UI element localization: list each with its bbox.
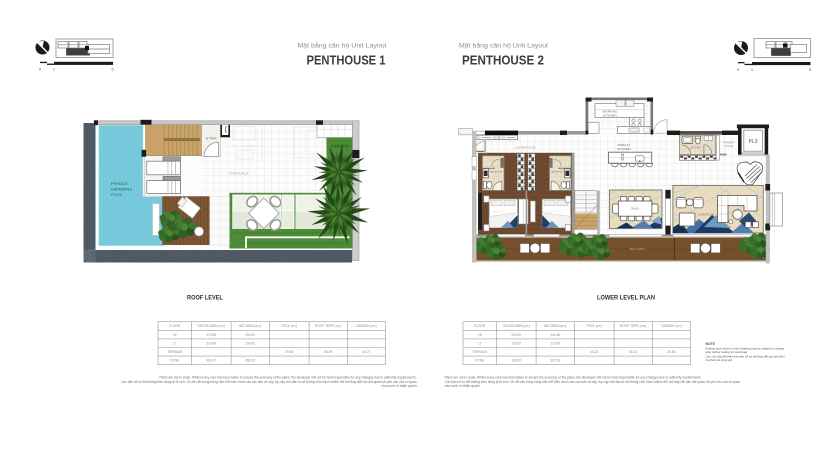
svg-text:nhà nước có thẩm quyền: nhà nước có thẩm quyền [445, 384, 481, 388]
svg-text:after further testing for wind: after further testing for wind load [706, 350, 748, 354]
svg-text:POOL (m²): POOL (m²) [586, 324, 601, 328]
svg-text:263.00: 263.00 [511, 333, 521, 337]
svg-text:ROOF TERR. (m²): ROOF TERR. (m²) [620, 324, 646, 328]
svg-text:BALCONY: BALCONY [630, 247, 646, 251]
svg-text:PENTHOUSE 2: PENTHOUSE 2 [462, 54, 544, 68]
svg-text:BEDROOM 1: BEDROOM 1 [547, 210, 563, 214]
svg-text:115.45: 115.45 [550, 341, 560, 345]
svg-text:DINING: DINING [631, 208, 640, 211]
svg-text:LIVING ROOM: LIVING ROOM [698, 214, 714, 217]
svg-text:tra thêm tải trọng gió: tra thêm tải trọng gió [706, 358, 733, 362]
svg-text:242.48: 242.48 [550, 333, 560, 337]
svg-text:459.22: 459.22 [245, 359, 255, 363]
svg-text:TERRACE: TERRACE [472, 350, 487, 354]
svg-text:GARDEN (m²): GARDEN (m²) [661, 324, 681, 328]
svg-text:51.42: 51.42 [629, 350, 637, 354]
svg-text:60.27: 60.27 [362, 350, 370, 354]
svg-text:16: 16 [173, 333, 177, 337]
svg-text:25.58: 25.58 [285, 350, 293, 354]
svg-text:BATHROOM: BATHROOM [490, 171, 502, 174]
svg-text:FOYER: FOYER [724, 144, 733, 148]
svg-text:STAIR: STAIR [206, 136, 217, 140]
svg-text:130.02: 130.02 [511, 341, 521, 345]
svg-text:393.02: 393.02 [511, 359, 521, 363]
svg-text:357.93: 357.93 [550, 359, 560, 363]
svg-text:PENTHOUSE 1: PENTHOUSE 1 [307, 54, 386, 68]
svg-text:Mặt bằng căn hộ Unit Layout: Mặt bằng căn hộ Unit Layout [459, 41, 548, 50]
svg-text:POOL (m²): POOL (m²) [281, 324, 296, 328]
svg-text:KITCHEN: KITCHEN [617, 147, 631, 151]
svg-text:ROOF LEVEL: ROOF LEVEL [187, 295, 223, 302]
svg-text:GROSS AREA (m²): GROSS AREA (m²) [197, 324, 224, 328]
svg-text:219.89: 219.89 [206, 341, 216, 345]
svg-text:Các bản vẽ có thể không theo đ: Các bản vẽ có thể không theo đúng tỷ lệ … [121, 380, 417, 384]
svg-text:CORRIDOR: CORRIDOR [515, 146, 536, 150]
svg-text:65.09: 65.09 [324, 350, 332, 354]
svg-text:204.92: 204.92 [245, 341, 255, 345]
svg-text:16: 16 [478, 333, 482, 337]
svg-text:TERRACE: TERRACE [228, 172, 249, 176]
svg-text:NET AREA (m²): NET AREA (m²) [239, 324, 261, 328]
svg-text:SWIMMING: SWIMMING [111, 187, 133, 191]
svg-text:KITCHEN: KITCHEN [603, 114, 617, 118]
svg-text:FLOOR: FLOOR [474, 324, 486, 328]
svg-text:LOWER LEVEL PLAN: LOWER LEVEL PLAN [597, 295, 655, 302]
svg-text:PRIVATE: PRIVATE [111, 182, 128, 186]
svg-text:BATH RM: BATH RM [690, 147, 700, 150]
svg-text:BATHROOM: BATHROOM [551, 171, 563, 174]
svg-text:TOTAL: TOTAL [170, 359, 180, 363]
svg-text:Các bản vẽ có thể không theo đ: Các bản vẽ có thể không theo đúng tỷ lệ … [445, 380, 741, 384]
svg-text:GARDEN: GARDEN [331, 144, 349, 148]
svg-text:17: 17 [173, 341, 177, 345]
svg-text:25.68: 25.68 [667, 350, 675, 354]
svg-text:PL3: PL3 [749, 139, 758, 145]
svg-text:492.47: 492.47 [206, 359, 216, 363]
svg-text:272.58: 272.58 [206, 333, 216, 337]
svg-text:BEDROOM 2: BEDROOM 2 [492, 210, 508, 214]
svg-text:GROSS AREA (m²): GROSS AREA (m²) [502, 324, 529, 328]
svg-text:17: 17 [478, 341, 482, 345]
svg-text:TERRACE: TERRACE [167, 350, 182, 354]
svg-text:POOL: POOL [111, 193, 122, 197]
svg-text:NOTE: NOTE [706, 342, 716, 346]
svg-text:GARDEN (m²): GARDEN (m²) [356, 324, 376, 328]
svg-text:46.23: 46.23 [590, 350, 598, 354]
svg-text:ROOF TERR. (m²): ROOF TERR. (m²) [315, 324, 341, 328]
svg-text:254.30: 254.30 [245, 333, 255, 337]
svg-text:NET AREA (m²): NET AREA (m²) [544, 324, 566, 328]
svg-text:nhà nước có thẩm quyền: nhà nước có thẩm quyền [381, 384, 417, 388]
svg-text:Mặt bằng căn hộ Unit Layout: Mặt bằng căn hộ Unit Layout [298, 41, 387, 50]
svg-text:FLOOR: FLOOR [169, 324, 181, 328]
svg-text:TOTAL: TOTAL [475, 359, 485, 363]
